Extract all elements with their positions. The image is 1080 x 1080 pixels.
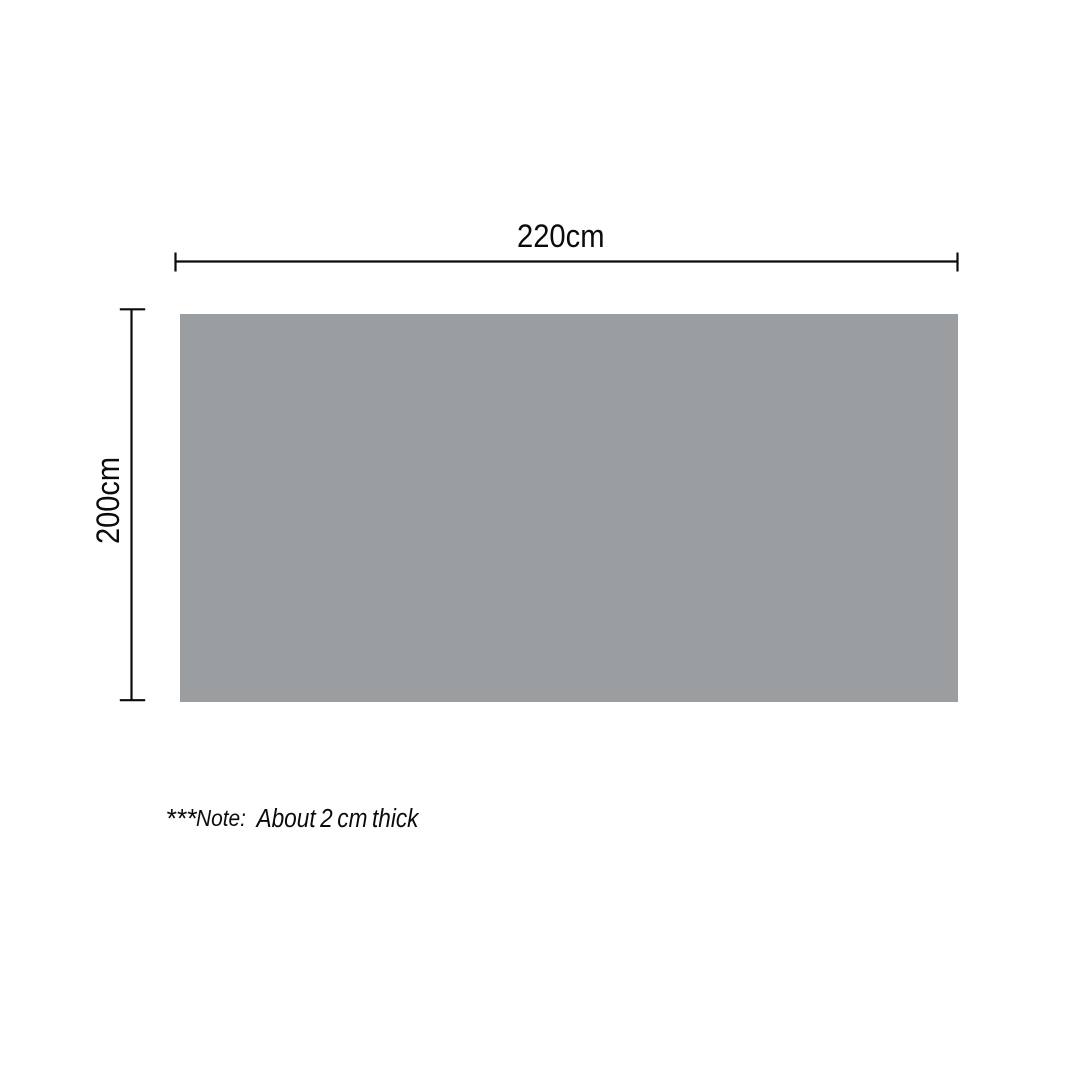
svg-text:200cm: 200cm	[90, 457, 126, 544]
svg-text:Note:: Note:	[196, 805, 246, 831]
svg-text:220cm: 220cm	[517, 218, 605, 254]
svg-text:***: ***	[166, 804, 199, 834]
svg-text:About 2 cm thick: About 2 cm thick	[255, 805, 420, 833]
